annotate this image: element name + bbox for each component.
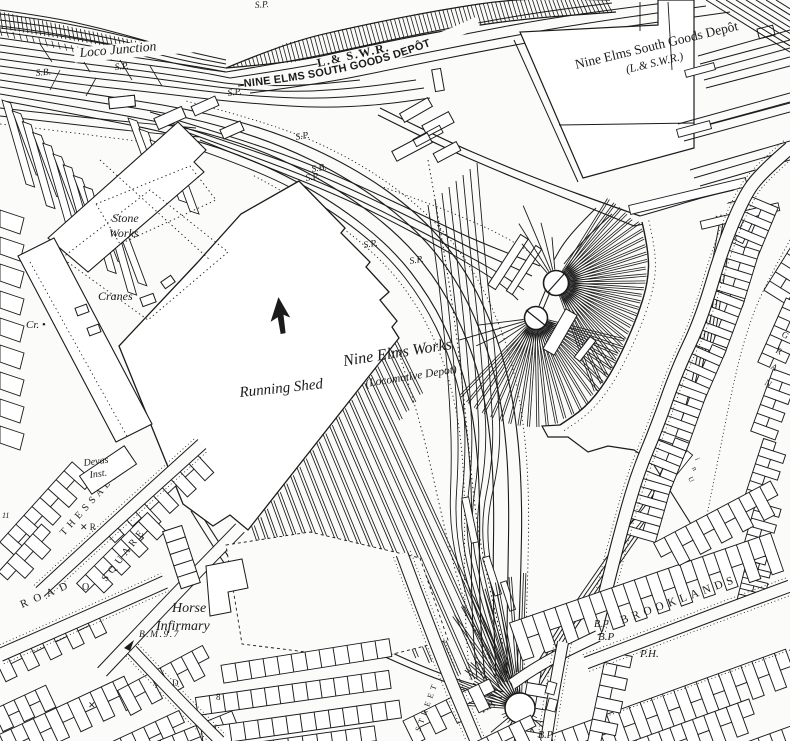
svg-text:P.H.: P.H.	[639, 648, 659, 660]
svg-text:B.P: B.P	[598, 631, 614, 643]
svg-text:Horse: Horse	[171, 601, 206, 616]
svg-text:B.P: B.P	[538, 730, 553, 741]
svg-text:S.P.: S.P.	[114, 62, 129, 73]
svg-text:S.P.: S.P.	[255, 0, 270, 11]
svg-text:✕: ✕	[88, 700, 96, 710]
svg-text:Works: Works	[109, 226, 139, 240]
svg-text:O: O	[82, 582, 89, 593]
svg-text:S.B.: S.B.	[35, 67, 51, 79]
svg-text:11: 11	[2, 511, 9, 520]
svg-text:Cr. •: Cr. •	[26, 319, 46, 331]
svg-text:S.P.: S.P.	[227, 87, 242, 99]
svg-text:Infirmary: Infirmary	[155, 619, 210, 634]
svg-text:Cranes: Cranes	[98, 289, 133, 303]
svg-text:B.P: B.P	[594, 619, 609, 630]
svg-text:Stone: Stone	[112, 211, 139, 225]
svg-text:8: 8	[216, 692, 221, 702]
svg-text:D: D	[172, 678, 179, 688]
svg-text:✕ R: ✕ R	[80, 522, 96, 532]
